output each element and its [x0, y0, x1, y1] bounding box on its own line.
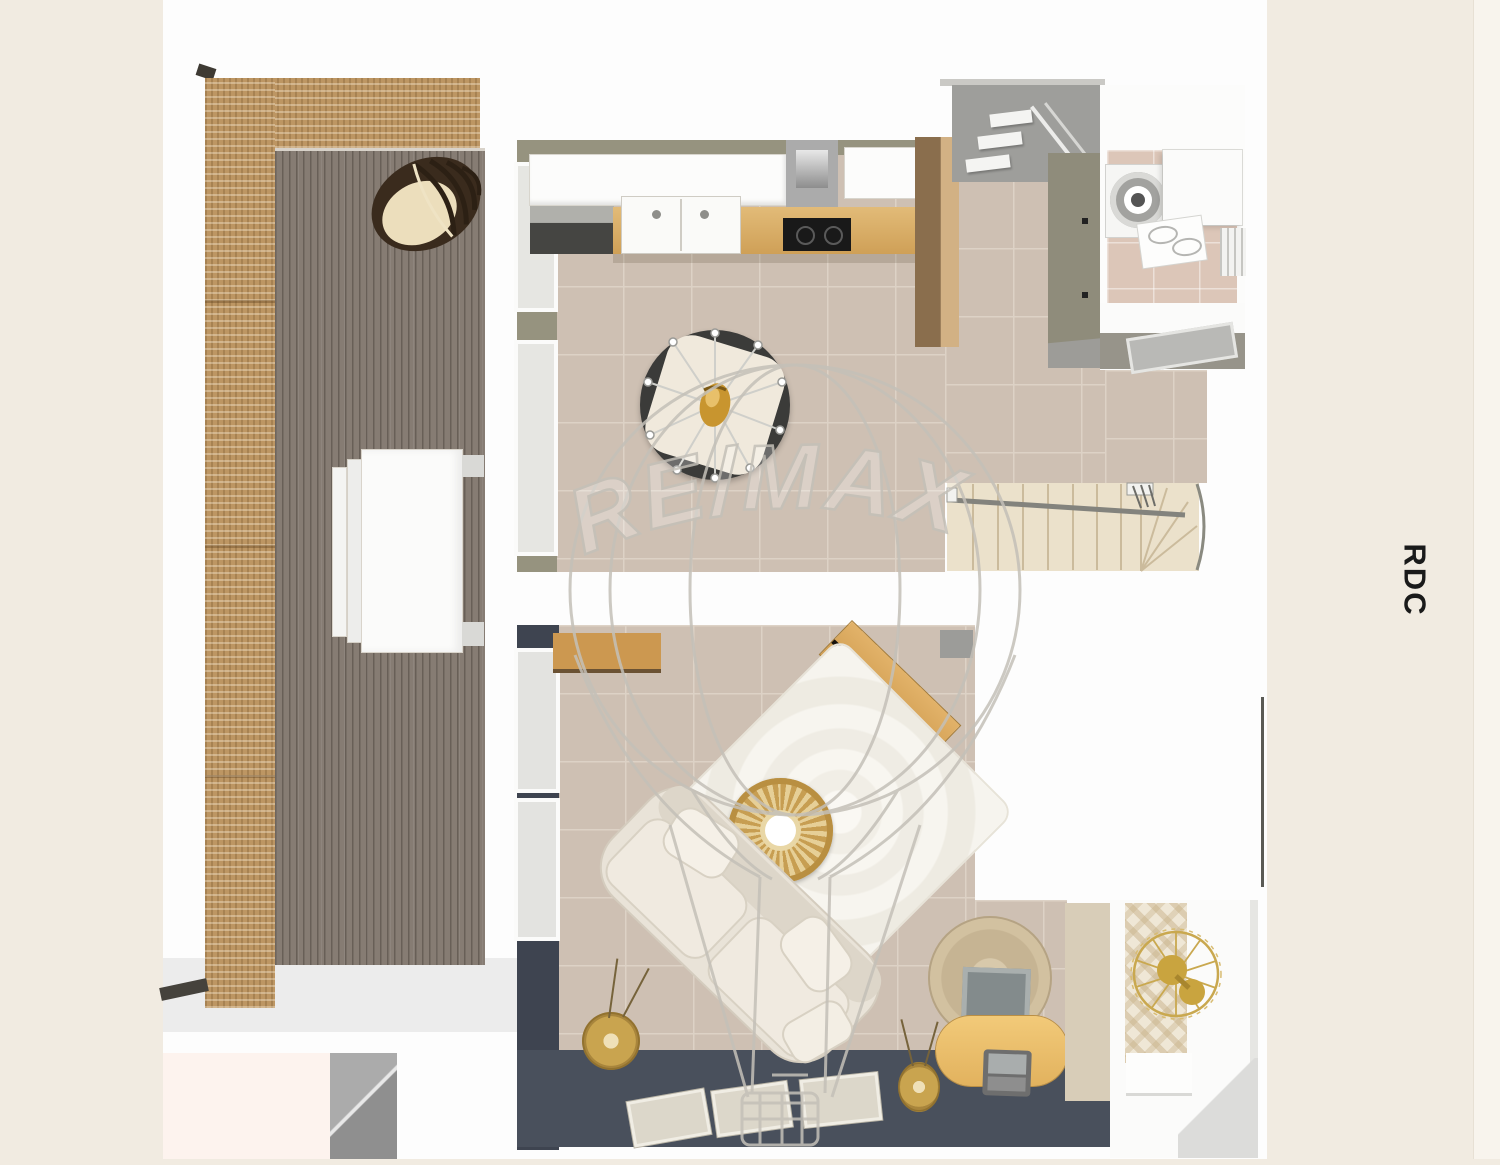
floor-label-text: RDC	[1397, 543, 1433, 616]
cooktop-burner	[796, 226, 815, 245]
terrace-bench	[348, 460, 361, 642]
terrace-bench	[333, 468, 346, 636]
egg-chair	[360, 150, 492, 262]
bathroom-counter	[1163, 150, 1242, 225]
page-right-margin	[1473, 0, 1500, 1159]
towel-rack	[1220, 228, 1246, 276]
floorplan-page: RE/MAX RDC	[0, 0, 1500, 1159]
terrace-chair	[462, 622, 484, 646]
door-handle-dot	[1082, 218, 1088, 224]
terrace-chair	[462, 455, 484, 477]
fence-panel-joint	[205, 300, 275, 303]
fence-panel-joint	[205, 545, 275, 548]
door-handle-dot	[1082, 292, 1088, 298]
washing-machine-door-icon	[1131, 193, 1145, 207]
kitchen-appliance-dark	[530, 200, 614, 254]
faucet-icon	[652, 210, 661, 219]
floor-label: RDC	[1383, 540, 1447, 620]
watermark-balloon: RE/MAX	[520, 355, 1140, 1165]
floor-shading	[1178, 1058, 1258, 1158]
lower-terrace-block	[163, 1053, 330, 1159]
garden-shed-box	[330, 1053, 397, 1159]
bathroom-partition-wall	[1048, 153, 1107, 367]
terrace-table	[362, 450, 462, 652]
svg-text:RE/MAX: RE/MAX	[555, 426, 979, 574]
sink-divider	[680, 199, 682, 251]
terrace-fence-left	[205, 78, 275, 1008]
watermark-text: RE/MAX	[555, 426, 979, 574]
fence-panel-joint	[205, 775, 275, 778]
counter-shadow	[613, 254, 915, 263]
faucet-icon	[700, 210, 709, 219]
cooktop-burner	[824, 226, 843, 245]
decorative-fan	[1126, 926, 1226, 1026]
outer-wall-line	[1261, 697, 1264, 887]
range-hood-chimney	[796, 150, 828, 188]
